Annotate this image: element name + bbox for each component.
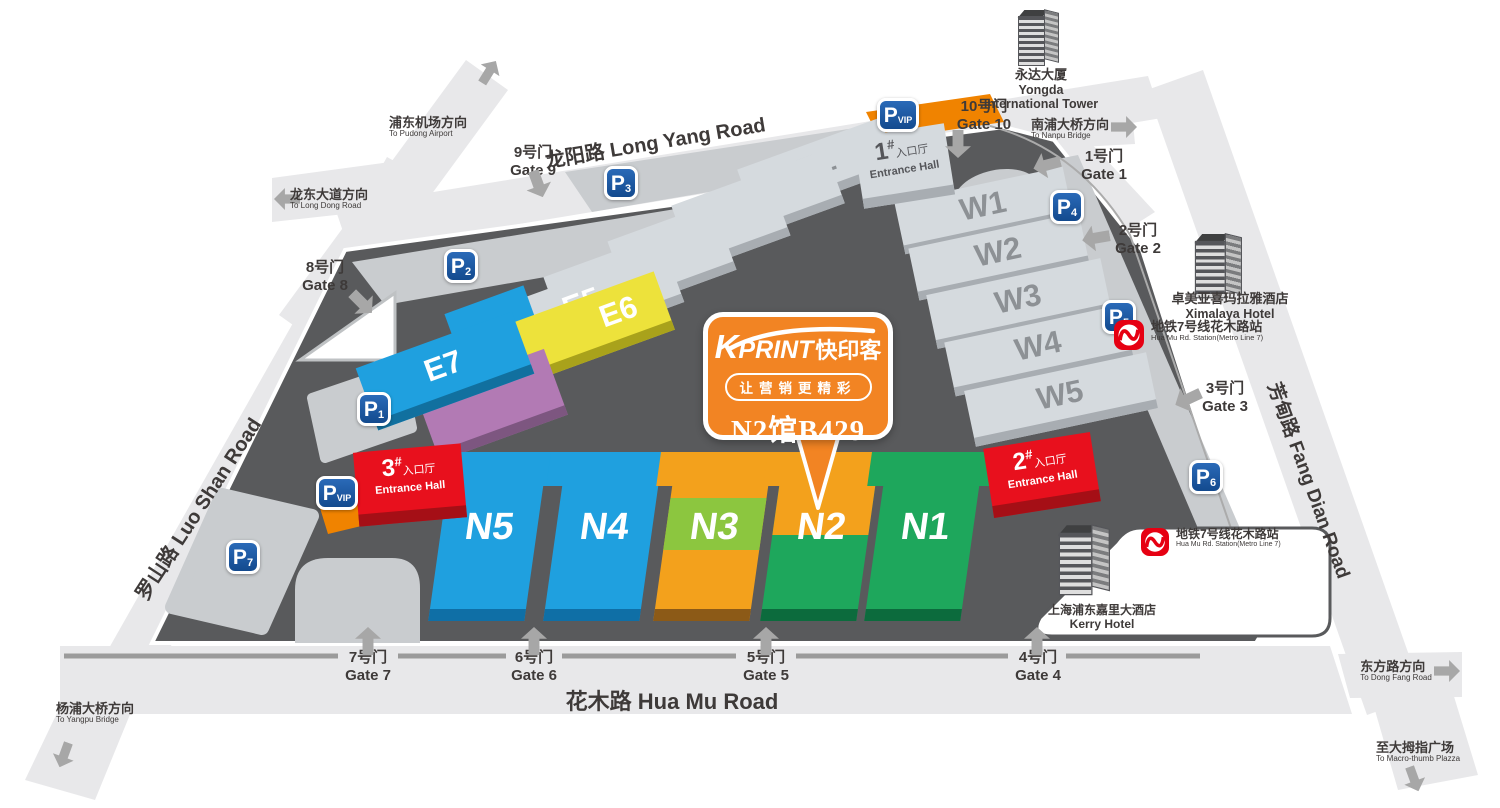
expo-map: E1 E2 E3 E4 E5 E6 E7 W1 W2 W3 W4 W5 N5 N… [0,0,1500,808]
parking-p2-icon: P2 [444,249,478,283]
entrance-hall-1: 1#入口厅 Entrance Hall [853,123,955,209]
dir-yangpu: 杨浦大桥方向To Yangpu Bridge [56,702,134,724]
metro-icon [1141,528,1169,556]
entrance-hall-3: 3#入口厅 Entrance Hall [353,443,467,526]
kerry-hotel-icon [1056,520,1114,598]
dir-pudong: 浦东机场方向To Pudong Airport [389,116,467,138]
parking-vip-west-icon: PVIP [316,476,358,510]
ximalaya-hotel-label: 卓美亚喜玛拉雅酒店 Ximalaya Hotel [1171,292,1288,321]
road-label-hua-mu: 花木路 Hua Mu Road [566,684,779,716]
parking-p6-icon: P6 [1189,460,1223,494]
hall-n1: N1 [848,452,1000,622]
kprint-logo: KPRINT快印客 [715,328,882,366]
metro-station-kerry: 地铁7号线花木路站 Hua Mu Rd. Station(Metro Line … [1141,528,1281,556]
parking-p3-icon: P3 [604,166,638,200]
kerry-hotel-label: 上海浦东嘉里大酒店 Kerry Hotel [1048,604,1156,632]
ximalaya-hotel-icon [1193,229,1246,300]
gate-3-label: 3号门Gate 3 [1202,380,1248,416]
metro-station-east: 地铁7号线花木路站 Hua Mu Rd. Station(Metro Line … [1114,320,1263,350]
dir-nanpu: 南浦大桥方向To Nanpu Bridge [1031,118,1109,140]
yongda-tower-icon [1016,6,1062,68]
parking-p1-icon: P1 [357,392,391,426]
gate-10-label: 10号门Gate 10 [957,98,1011,134]
gate-1-label: 1号门Gate 1 [1081,148,1127,184]
gate-8-label: 8号门Gate 8 [302,259,348,295]
dir-longdong: 龙东大道方向To Long Dong Road [290,188,368,210]
metro-icon [1114,320,1144,350]
parking-p7-icon: P7 [226,540,260,574]
gate-2-label: 2号门Gate 2 [1115,222,1161,258]
lot-center [295,558,420,643]
kprint-callout: KPRINT快印客 让营销更精彩 N2馆B429 [703,312,893,440]
booth-number: N2馆B429 [731,407,865,449]
dir-dongfang: 东方路方向To Dong Fang Road [1360,660,1432,682]
parking-vip-north-icon: PVIP [877,98,919,132]
kprint-slogan: 让营销更精彩 [725,373,872,401]
dir-macrothumb: 至大拇指广场To Macro-thumb Plazza [1376,741,1460,763]
parking-p4-icon: P4 [1050,190,1084,224]
